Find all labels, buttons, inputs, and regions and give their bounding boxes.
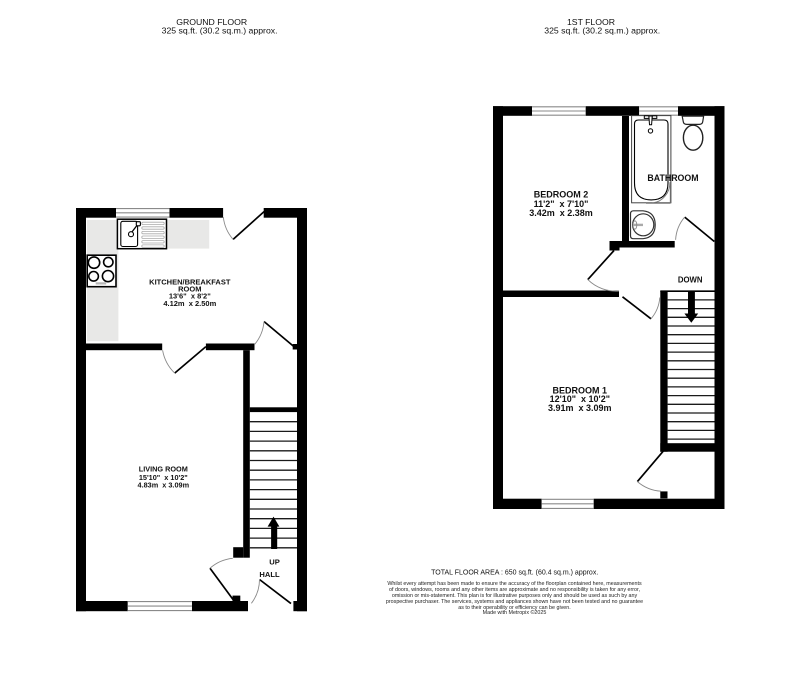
svg-text:4.12m x 2.50m: 4.12m x 2.50m — [163, 299, 216, 308]
svg-text:BATHROOM: BATHROOM — [647, 173, 698, 183]
svg-text:omission or mis-statement. Thi: omission or mis-statement. This plan is … — [392, 593, 638, 599]
svg-text:Made with Metropix ©2025: Made with Metropix ©2025 — [483, 609, 547, 616]
svg-text:325 sq.ft. (30.2 sq.m.) approx: 325 sq.ft. (30.2 sq.m.) approx. — [162, 26, 278, 36]
svg-text:4.83m x 3.09m: 4.83m x 3.09m — [138, 481, 190, 490]
svg-text:325 sq.ft. (30.2 sq.m.) approx: 325 sq.ft. (30.2 sq.m.) approx. — [544, 26, 660, 36]
svg-text:DOWN: DOWN — [678, 275, 703, 284]
svg-text:UP: UP — [269, 557, 280, 566]
svg-text:prospective purchaser. The ser: prospective purchaser. The services, sys… — [386, 599, 643, 605]
svg-text:3.42m x 2.38m: 3.42m x 2.38m — [529, 208, 593, 218]
svg-text:TOTAL FLOOR AREA : 650 sq.ft.: TOTAL FLOOR AREA : 650 sq.ft. (60.4 sq.m… — [431, 570, 598, 577]
svg-text:3.91m x 3.09m: 3.91m x 3.09m — [548, 403, 612, 413]
svg-text:HALL: HALL — [259, 570, 280, 579]
